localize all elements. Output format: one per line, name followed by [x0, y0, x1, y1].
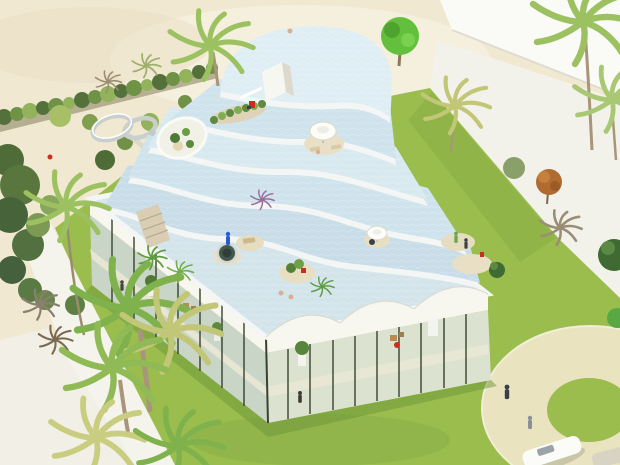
poolside-figure — [454, 232, 458, 243]
rendering-stage — [0, 0, 620, 465]
red-chair — [480, 252, 484, 257]
grey-green-tree — [503, 157, 525, 179]
lounger-island — [236, 235, 264, 251]
poolside-figure — [464, 238, 468, 249]
swimmer — [289, 295, 294, 300]
interior-person — [120, 280, 124, 291]
interior-person — [298, 391, 302, 403]
red-flower — [48, 155, 53, 160]
pool-building-rendering — [0, 0, 620, 465]
pedestrian — [528, 416, 532, 429]
standing-figure — [226, 232, 230, 245]
pedestrian — [505, 385, 510, 400]
seated-figure — [247, 106, 251, 109]
red-flowers — [394, 342, 400, 348]
red-chair — [301, 268, 306, 273]
swimmer — [288, 29, 293, 34]
swimmer — [279, 291, 284, 296]
